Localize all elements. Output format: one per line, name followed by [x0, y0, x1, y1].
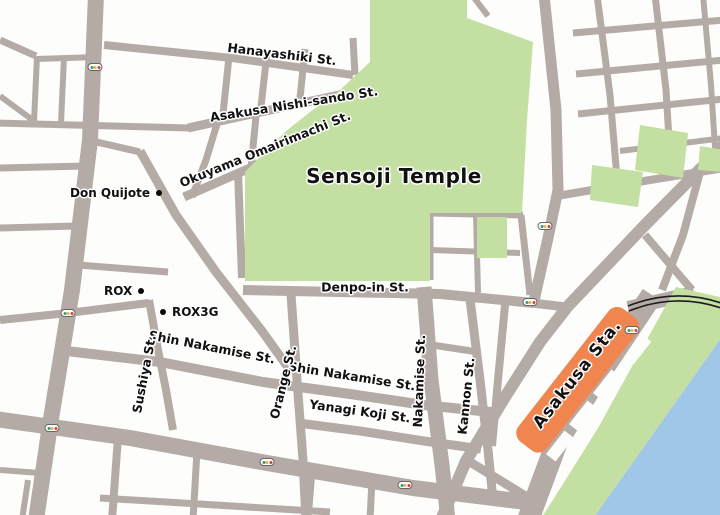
- poi-marker-icon: [138, 288, 144, 294]
- traffic-signal-icon: [625, 326, 640, 334]
- traffic-signal-icon: [538, 222, 553, 230]
- poi-don-quijote-label: Don Quijote: [70, 186, 150, 200]
- poi-marker-icon: [160, 309, 166, 315]
- poi-don-quijote: Don Quijote: [70, 186, 162, 200]
- traffic-signal-icon: [260, 458, 275, 466]
- traffic-signal-icon: [88, 63, 103, 71]
- traffic-signal-icon: [523, 298, 538, 306]
- poi-rox-label: ROX: [104, 284, 132, 298]
- poi-rox: ROX: [104, 284, 144, 298]
- traffic-signal-icon: [398, 481, 413, 489]
- poi-rox3g-label: ROX3G: [172, 305, 218, 319]
- traffic-signal-icon: [61, 309, 76, 317]
- map-canvas: [0, 0, 720, 515]
- traffic-signal-icon: [45, 424, 60, 432]
- asakusa-map: Hanayashiki St. Asakusa Nishi-sando St. …: [0, 0, 720, 515]
- poi-rox3g: ROX3G: [160, 305, 218, 319]
- poi-marker-icon: [156, 190, 162, 196]
